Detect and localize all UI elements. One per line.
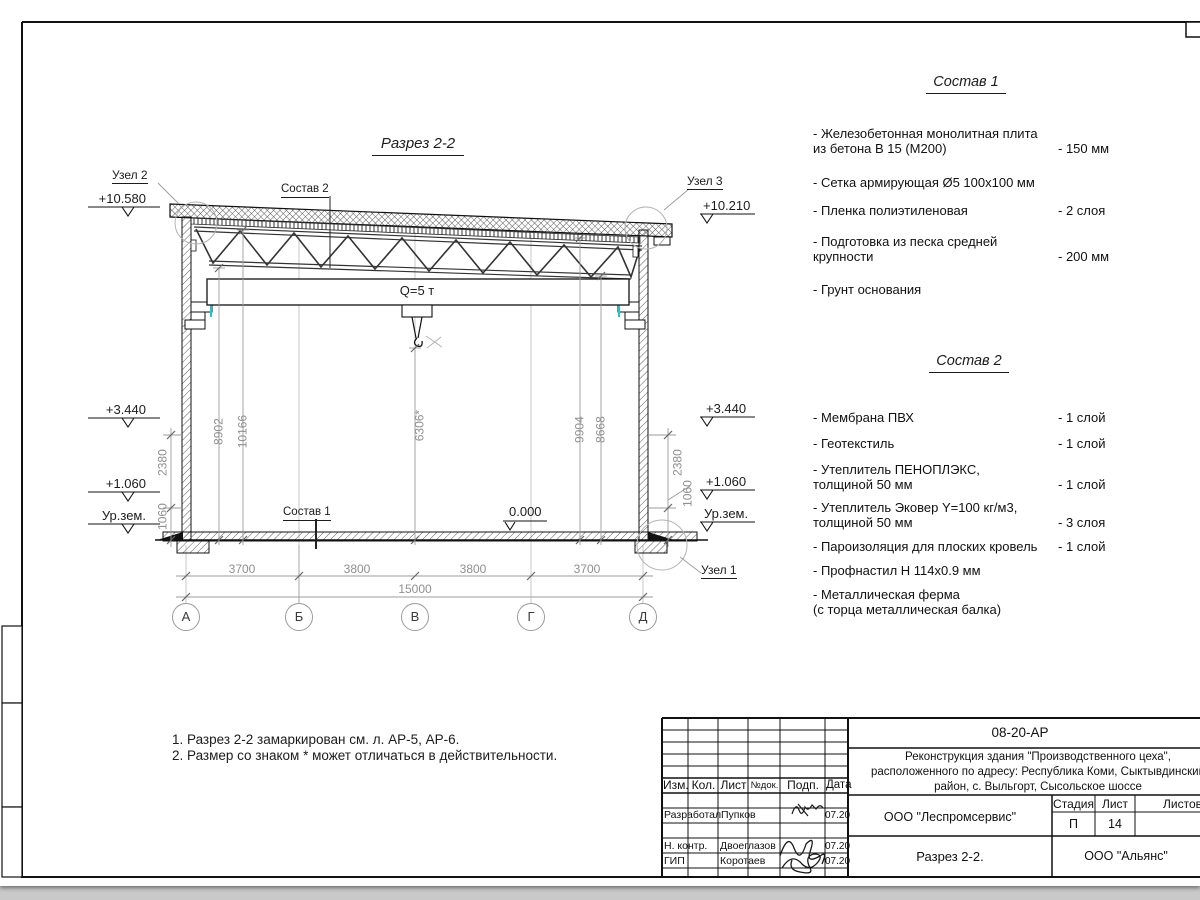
tb-col-data: Дата — [826, 779, 848, 792]
material-item: - Железобетонная монолитная плита из бет… — [813, 127, 1165, 156]
dim-10166: 10166 — [236, 410, 249, 454]
tb-col-izm: Изм. — [663, 779, 688, 792]
material-item: - Утеплитель Эковер Y=100 кг/м3, толщино… — [813, 501, 1165, 530]
dim-left-2380: 2380 — [156, 441, 169, 485]
margin-box-1 — [2, 626, 22, 703]
floor-and-ground — [155, 532, 708, 553]
tb-role-nkontr: Н. контр. — [664, 841, 707, 853]
elev-left-ground: Ур.зем. — [88, 509, 146, 523]
tb-org: ООО "Леспромсервис" — [848, 811, 1052, 825]
material-item: - Мембрана ПВХ- 1 слой — [813, 411, 1165, 426]
elev-left-low: +1.060 — [88, 477, 146, 491]
sostav1-heading: Состав 1 — [926, 75, 1006, 94]
dim-span-1: 3700 — [220, 563, 264, 576]
tb-project-name: Реконструкция здания "Производственного … — [848, 750, 1200, 796]
zero-level-arrow — [505, 522, 515, 530]
material-item: - Сетка армирующая Ø5 100х100 мм — [813, 176, 1165, 191]
paper-sheet: Разрез 2-2 Узел 2 Узел 3 Узел 1 Состав 2… — [0, 0, 1200, 886]
material-item: - Геотекстиль- 1 слой — [813, 437, 1165, 452]
note-2: 2. Размер со знаком * может отличаться в… — [172, 749, 557, 764]
material-item: - Грунт основания — [813, 283, 1165, 298]
dim-left-1060: 1060 — [156, 495, 169, 539]
sostav1-ref-label: Состав 1 — [283, 506, 331, 521]
dim-8902: 8902 — [212, 410, 225, 454]
tb-date-2: 07.20 — [825, 841, 848, 852]
tb-name-korotaev: Коротаев — [720, 856, 765, 868]
tb-stage-value: П — [1052, 818, 1095, 832]
sostav2-heading: Состав 2 — [929, 354, 1009, 373]
margin-box-3 — [2, 807, 22, 877]
material-item: - Пароизоляция для плоских кровель- 1 сл… — [813, 540, 1165, 555]
zero-level-label: 0.000 — [509, 505, 542, 519]
tb-sheet-header: Лист — [1095, 798, 1135, 811]
dim-6306: 6306* — [413, 404, 426, 448]
tb-sheets-header: Листов — [1163, 798, 1200, 811]
dim-right-1060: 1060 — [681, 472, 694, 516]
right-foundation — [635, 541, 667, 553]
elev-right-ground: Ур.зем. — [704, 507, 748, 521]
tb-date-3: 07.20 — [825, 856, 848, 867]
margin-box-2 — [2, 703, 22, 807]
hoist-trolley — [402, 305, 432, 317]
elev-right-top: +10.210 — [703, 199, 750, 213]
tb-role-razrabotal: Разработал — [664, 810, 721, 822]
left-foundation — [177, 541, 209, 553]
callout-uzel2-label: Узел 2 — [112, 169, 148, 184]
elev-left-top: +10.580 — [88, 192, 146, 206]
dim-span-2: 3800 — [335, 563, 379, 576]
material-item: - Профнастил Н 114х0.9 мм — [813, 564, 1165, 579]
tb-date-1: 07.20 — [825, 810, 848, 821]
material-item: - Подготовка из песка средней крупности-… — [813, 235, 1165, 264]
grid-bubble-v: В — [407, 610, 423, 624]
left-wall — [182, 217, 191, 541]
tb-stage-header: Стадия — [1052, 798, 1095, 811]
tb-sheet-value: 14 — [1095, 818, 1135, 832]
tb-col-podp: Подп. — [781, 779, 825, 792]
drawing-sheet-page: { "drawing": { "title": "Разрез 2-2", "c… — [0, 0, 1200, 900]
grid-bubble-d: Д — [635, 610, 651, 624]
tb-org2: ООО "Альянс" — [1052, 850, 1200, 864]
callout-uzel1-label: Узел 1 — [701, 564, 737, 579]
dim-total: 15000 — [391, 583, 439, 596]
drawing-title: Разрез 2-2 — [372, 136, 464, 156]
dim-9904: 9904 — [573, 408, 586, 452]
tb-name-dvoeglazov: Двоеглазов — [720, 841, 776, 853]
corner-stamp-box — [1186, 22, 1200, 37]
elev-right-low: +1.060 — [706, 475, 746, 489]
tb-col-kol: Кол. — [689, 779, 718, 792]
tb-sheet-title: Разрез 2-2. — [848, 850, 1052, 864]
signature-nkontr-gip — [776, 828, 828, 879]
material-item: - Утеплитель ПЕНОПЛЭКС, толщиной 50 мм- … — [813, 463, 1165, 492]
grid-bubble-a: А — [178, 610, 194, 624]
grid-bubble-b: Б — [291, 610, 307, 624]
elev-left-mid: +3.440 — [88, 403, 146, 417]
note-1: 1. Разрез 2-2 замаркирован см. л. АР-5, … — [172, 733, 459, 748]
grid-bubble-g: Г — [523, 610, 539, 624]
tb-name-pupkov: Пупков — [721, 810, 756, 822]
dim-span-3: 3800 — [451, 563, 495, 576]
tb-role-gip: ГИП — [664, 856, 685, 868]
signature-razrabotal — [788, 800, 826, 823]
tb-doc-code: 08-20-АР — [920, 726, 1120, 741]
crane-capacity-label: Q=5 т — [389, 284, 445, 298]
callout-uzel3-label: Узел 3 — [687, 175, 723, 190]
tb-col-ndok: №док. — [749, 781, 780, 791]
vertical-dim-lines — [213, 230, 607, 545]
dim-8668: 8668 — [594, 408, 607, 452]
material-item: - Пленка полиэтиленовая- 2 слоя — [813, 204, 1165, 219]
right-wall — [639, 230, 648, 541]
sostav2-ref-label: Состав 2 — [281, 183, 329, 198]
tb-col-list: Лист — [719, 779, 748, 792]
elev-right-mid: +3.440 — [706, 402, 746, 416]
dim-span-4: 3700 — [565, 563, 609, 576]
material-item: - Металлическая ферма (с торца металличе… — [813, 588, 1165, 617]
